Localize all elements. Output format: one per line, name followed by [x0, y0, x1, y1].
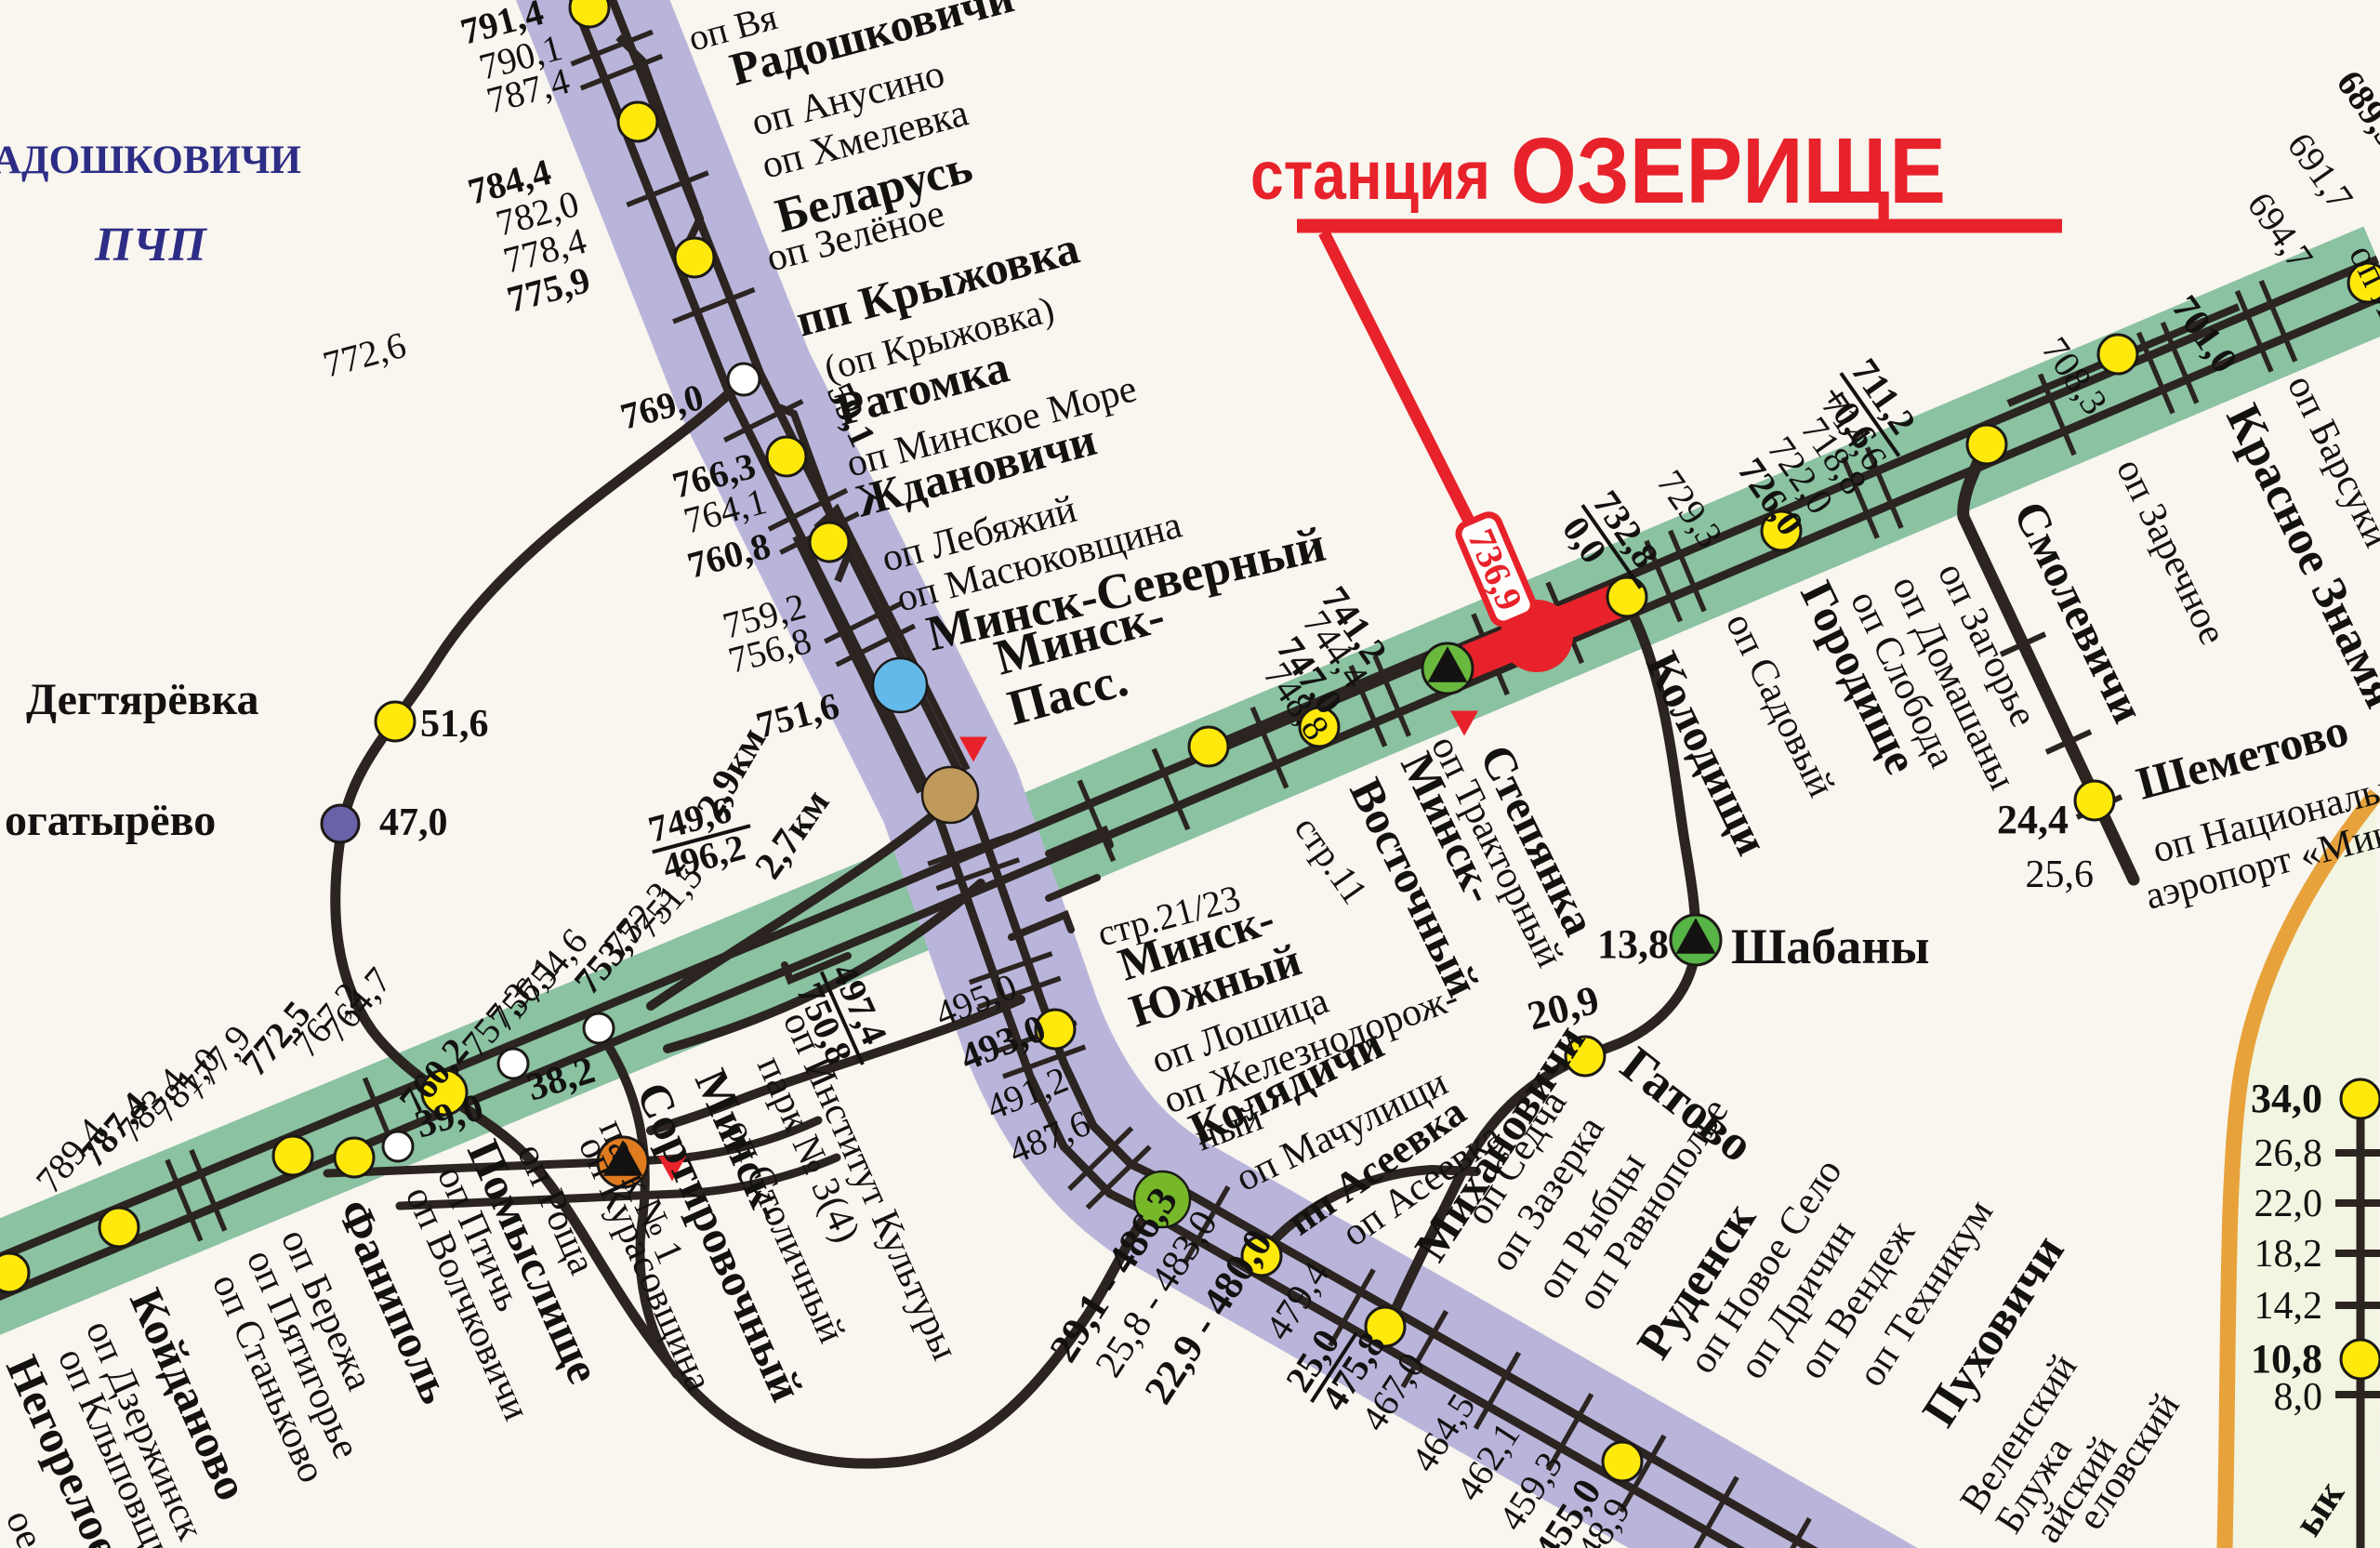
- svg-text:26,8: 26,8: [2254, 1132, 2323, 1175]
- svg-text:34,0: 34,0: [2251, 1076, 2322, 1121]
- svg-text:станция: станция: [1250, 137, 1490, 214]
- svg-text:8,0: 8,0: [2274, 1376, 2323, 1419]
- svg-text:Шабаны: Шабаны: [1731, 919, 1930, 974]
- svg-text:огатырёво: огатырёво: [5, 796, 216, 845]
- svg-text:ОЗЕРИЩЕ: ОЗЕРИЩЕ: [1511, 119, 1946, 223]
- svg-text:24,4: 24,4: [1997, 797, 2069, 842]
- svg-text:14,2: 14,2: [2254, 1285, 2323, 1328]
- svg-text:51,6: 51,6: [420, 703, 489, 746]
- svg-text:10,8: 10,8: [2251, 1336, 2322, 1382]
- svg-text:47,0: 47,0: [379, 801, 448, 844]
- svg-text:Дегтярёвка: Дегтярёвка: [26, 675, 258, 724]
- svg-text:13,8: 13,8: [1597, 921, 1669, 967]
- svg-text:АДОШКОВИЧИ: АДОШКОВИЧИ: [0, 139, 301, 182]
- svg-text:22,0: 22,0: [2254, 1183, 2323, 1225]
- svg-text:18,2: 18,2: [2254, 1233, 2323, 1276]
- svg-text:25,6: 25,6: [2026, 853, 2095, 896]
- svg-text:ПЧП: ПЧП: [94, 218, 207, 271]
